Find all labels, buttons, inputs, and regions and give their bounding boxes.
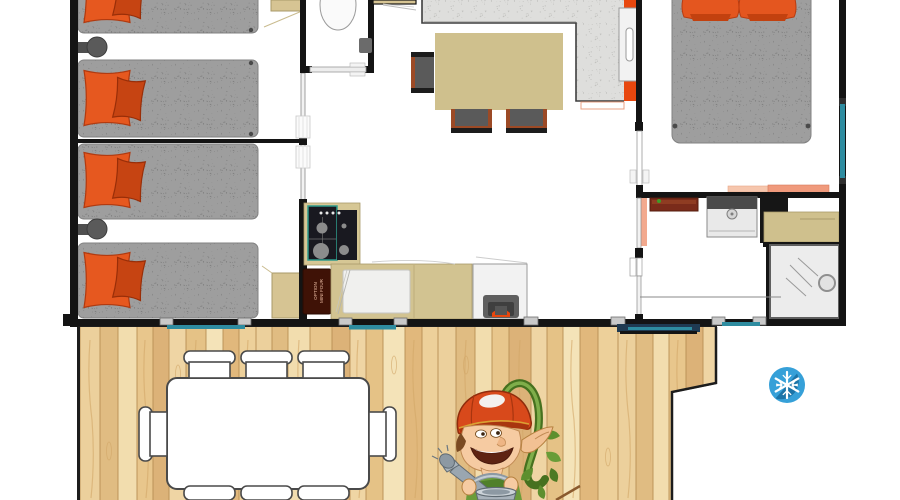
svg-text:OPTION: OPTION xyxy=(313,282,318,300)
svg-text:MINI FOUR: MINI FOUR xyxy=(319,278,324,303)
